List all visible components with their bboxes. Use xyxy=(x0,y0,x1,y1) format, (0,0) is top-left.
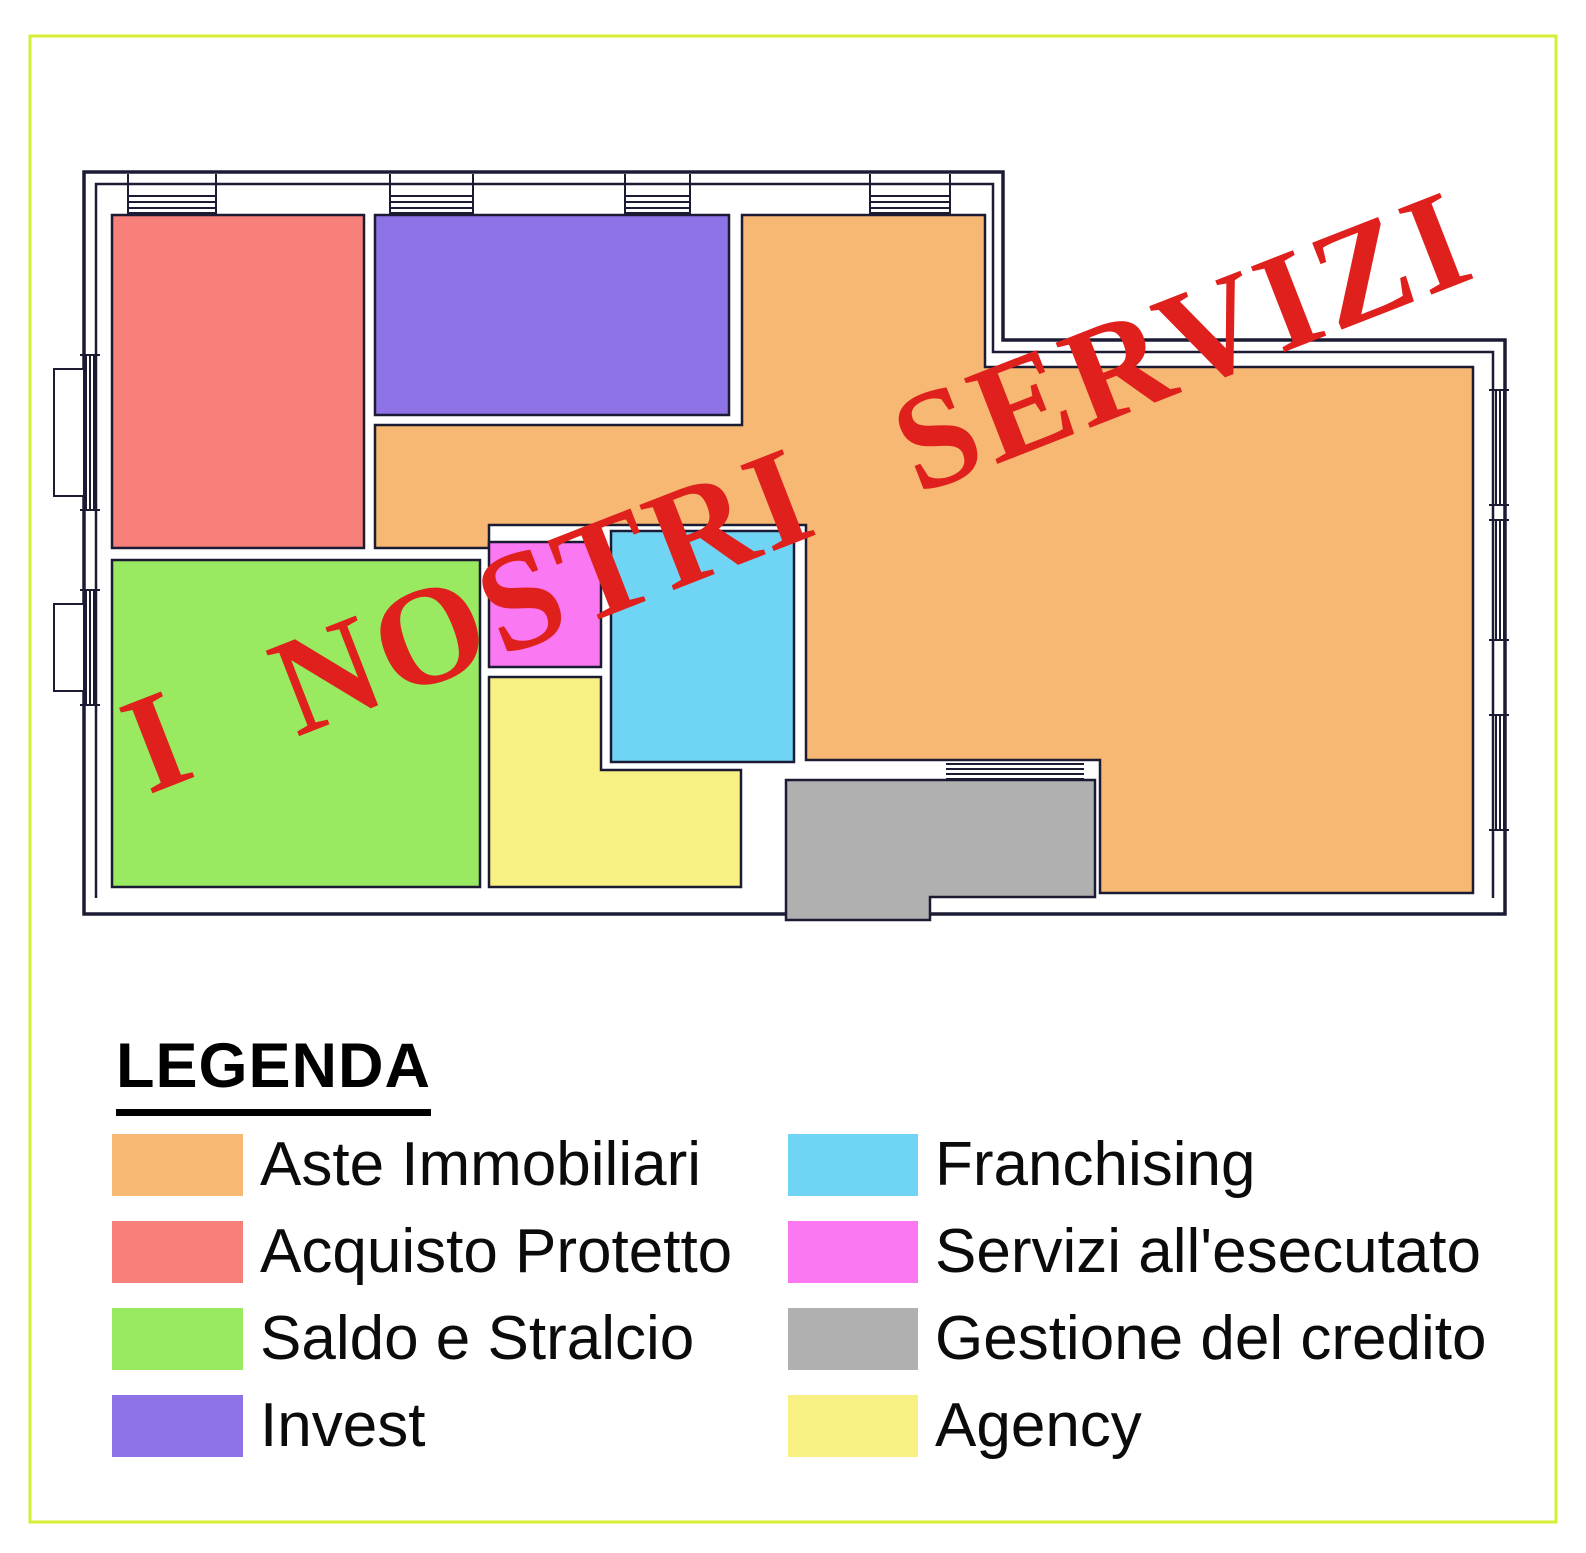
swatch-color xyxy=(788,1221,918,1283)
legend-label: Servizi all'esecutato xyxy=(935,1221,1481,1283)
legend-item-acquisto-protetto: Acquisto Protetto xyxy=(112,1221,732,1283)
legend-label: Gestione del credito xyxy=(935,1308,1486,1370)
room-invest xyxy=(375,215,729,415)
window-left-2 xyxy=(54,590,100,705)
legend-swatch-servizi-esecutato xyxy=(788,1221,918,1283)
legend-swatch-saldo-e-stralcio xyxy=(112,1308,243,1370)
swatch-color xyxy=(112,1308,243,1370)
swatch-color xyxy=(788,1395,918,1457)
legend-item-gestione-credito: Gestione del credito xyxy=(788,1308,1486,1370)
legend-label: Aste Immobiliari xyxy=(260,1134,701,1196)
legend-item-invest: Invest xyxy=(112,1395,732,1457)
legend-swatch-agency xyxy=(788,1395,918,1457)
legend-item-aste-immobiliari: Aste Immobiliari xyxy=(112,1134,732,1196)
legend-label: Acquisto Protetto xyxy=(260,1221,732,1283)
swatch-color xyxy=(112,1395,243,1457)
legend-column-left: Aste Immobiliari Acquisto Protetto Saldo… xyxy=(112,1134,732,1457)
legend-label: Invest xyxy=(260,1395,425,1457)
legend-title: LEGENDA xyxy=(116,1030,431,1116)
legend-swatch-gestione-credito xyxy=(788,1308,918,1370)
swatch-color xyxy=(788,1308,918,1370)
room-acquisto-protetto xyxy=(112,215,364,548)
legend-item-saldo-e-stralcio: Saldo e Stralcio xyxy=(112,1308,732,1370)
legend-item-servizi-esecutato: Servizi all'esecutato xyxy=(788,1221,1486,1283)
window-left-1 xyxy=(54,355,100,510)
legend-label: Saldo e Stralcio xyxy=(260,1308,694,1370)
legend-label: Agency xyxy=(935,1395,1142,1457)
swatch-color xyxy=(112,1221,243,1283)
legend-column-right: Franchising Servizi all'esecutato Gestio… xyxy=(788,1134,1486,1457)
legend-item-franchising: Franchising xyxy=(788,1134,1486,1196)
legend-label: Franchising xyxy=(935,1134,1255,1196)
swatch-color xyxy=(788,1134,918,1196)
flyer-page: I NOSTRI SERVIZI LEGENDA Aste Immobiliar… xyxy=(0,0,1586,1553)
legend-swatch-invest xyxy=(112,1395,243,1457)
swatch-color xyxy=(112,1134,243,1196)
legend-swatch-franchising xyxy=(788,1134,918,1196)
legend-item-agency: Agency xyxy=(788,1395,1486,1457)
legend-swatch-aste-immobiliari xyxy=(112,1134,243,1196)
legend-swatch-acquisto-protetto xyxy=(112,1221,243,1283)
